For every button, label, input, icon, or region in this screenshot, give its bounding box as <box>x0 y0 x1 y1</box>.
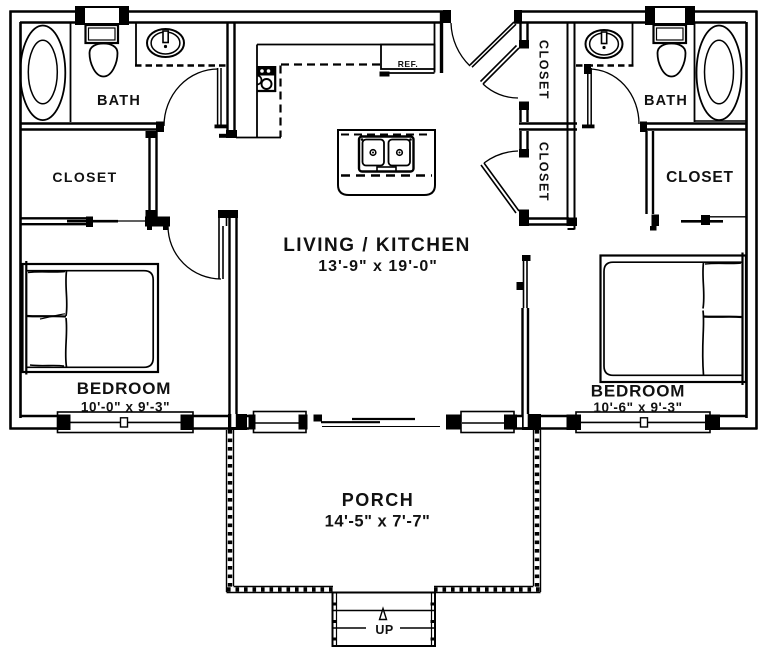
svg-text:CLOSET: CLOSET <box>537 142 551 202</box>
svg-text:REF.: REF. <box>398 59 418 69</box>
svg-text:10'-6" x 9'-3": 10'-6" x 9'-3" <box>593 400 682 415</box>
svg-text:BATH: BATH <box>97 93 141 109</box>
svg-text:BEDROOM: BEDROOM <box>591 382 685 401</box>
svg-text:14'-5" x 7'-7": 14'-5" x 7'-7" <box>325 513 431 531</box>
svg-text:PORCH: PORCH <box>342 490 415 510</box>
svg-text:10'-0" x 9'-3": 10'-0" x 9'-3" <box>81 400 170 415</box>
svg-text:CLOSET: CLOSET <box>537 40 551 100</box>
svg-text:CLOSET: CLOSET <box>666 169 734 186</box>
svg-text:CLOSET: CLOSET <box>52 169 117 185</box>
svg-text:BEDROOM: BEDROOM <box>77 379 171 398</box>
svg-text:BATH: BATH <box>644 93 688 109</box>
svg-text:13'-9" x 19'-0": 13'-9" x 19'-0" <box>318 258 438 275</box>
svg-text:UP: UP <box>375 623 393 637</box>
svg-text:LIVING / KITCHEN: LIVING / KITCHEN <box>283 235 471 256</box>
